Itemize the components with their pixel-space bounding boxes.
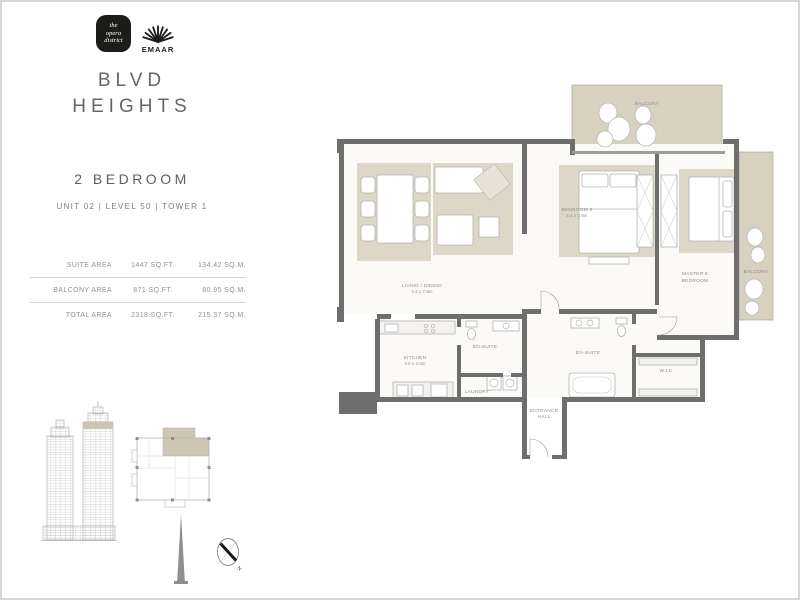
opera-logo-line3: district [104, 37, 122, 45]
level-highlight-band [83, 422, 113, 429]
room-label-balcony-top: BALCONY [635, 101, 660, 107]
floorplan-brochure-page: the opera district EMAAR [0, 0, 800, 600]
floor-plan: BALCONY BALCONY BEDROOM 2 5.4 x 3.9m LIV… [327, 77, 797, 477]
pillow [723, 211, 732, 237]
burj-spire-silhouette [174, 514, 188, 584]
compass-north-label: N [236, 565, 243, 572]
room-label-ensuite2: EN-SUITE [576, 350, 600, 356]
project-title: BLVD HEIGHTS [22, 68, 242, 120]
table-row: SUITE AREA 1447 SQ.FT. 134.42 SQ.M. [30, 253, 246, 278]
room-dims-living: 4.2 x 7.8m [411, 289, 433, 294]
area-row-label: BALCONY AREA [30, 287, 118, 294]
toilet-tank [616, 318, 627, 324]
table-row: BALCONY AREA 871 SQ.FT. 80.95 SQ.M. [30, 278, 246, 303]
pillow [582, 174, 608, 187]
area-table: SUITE AREA 1447 SQ.FT. 134.42 SQ.M. BALC… [30, 253, 246, 327]
appliance [412, 385, 423, 396]
compass: N [218, 539, 243, 573]
opera-logo-line2: opera [106, 30, 121, 38]
project-title-line1: BLVD [22, 68, 242, 94]
area-row-sqft: 1447 SQ.FT. [118, 262, 188, 269]
project-title-line2: HEIGHTS [22, 94, 242, 120]
bench [589, 257, 629, 264]
unit-info-line: UNIT 02 | LEVEL 50 | TOWER 1 [22, 202, 242, 211]
sink [385, 324, 398, 332]
pillow [723, 181, 732, 207]
room-label-balcony-right: BALCONY [744, 269, 769, 275]
room-dims-bedroom2: 5.4 x 3.9m [566, 213, 588, 218]
area-row-sqm: 215.37 SQ.M. [188, 312, 246, 319]
dining-table [377, 175, 413, 243]
room-label-master-2: BEDROOM [682, 278, 709, 284]
area-row-sqft: 871 SQ.FT. [118, 287, 188, 294]
emaar-logo: EMAAR [138, 15, 178, 54]
room-label-ensuite1: EN-SUITE [473, 344, 497, 350]
opera-district-logo: the opera district [96, 15, 131, 52]
opera-logo-line1: the [110, 22, 118, 30]
sofa-2 [437, 215, 473, 245]
area-row-label: SUITE AREA [30, 262, 118, 269]
area-row-sqft: 2318 SQ.FT. [118, 312, 188, 319]
room-label-laundry: LAUNDRY [465, 389, 490, 395]
brand-logos: the opera district EMAAR [96, 15, 178, 54]
window-wall [572, 151, 725, 154]
area-row-sqm: 134.42 SQ.M. [188, 262, 246, 269]
pillow [610, 174, 636, 187]
toilet [468, 329, 476, 340]
location-graphics: N [35, 400, 250, 595]
room-label-entrance-1: ENTRANCE [530, 408, 558, 414]
room-dims-kitchen: 4.0 x 3.0m [404, 361, 426, 366]
toilet-tank [466, 321, 477, 327]
bathtub [569, 373, 615, 397]
emaar-rays-icon [138, 15, 178, 44]
area-row-sqm: 80.95 SQ.M. [188, 287, 246, 294]
room-label-entrance-2: HALL [538, 414, 551, 420]
unit-highlight [163, 428, 209, 456]
side-table [479, 217, 499, 237]
unit-type-heading: 2 BEDROOM [22, 171, 242, 187]
table-row: TOTAL AREA 2318 SQ.FT. 215.37 SQ.M. [30, 303, 246, 327]
room-label-master-1: MASTER'S [682, 271, 708, 277]
vanity [493, 321, 519, 331]
toilet [618, 326, 626, 337]
emaar-wordmark: EMAAR [142, 45, 175, 54]
area-row-label: TOTAL AREA [30, 312, 118, 319]
fridge [431, 384, 447, 397]
room-label-wic: W.I.C [660, 368, 673, 374]
double-vanity [571, 318, 599, 328]
key-plan [132, 428, 211, 507]
oven [397, 385, 408, 396]
